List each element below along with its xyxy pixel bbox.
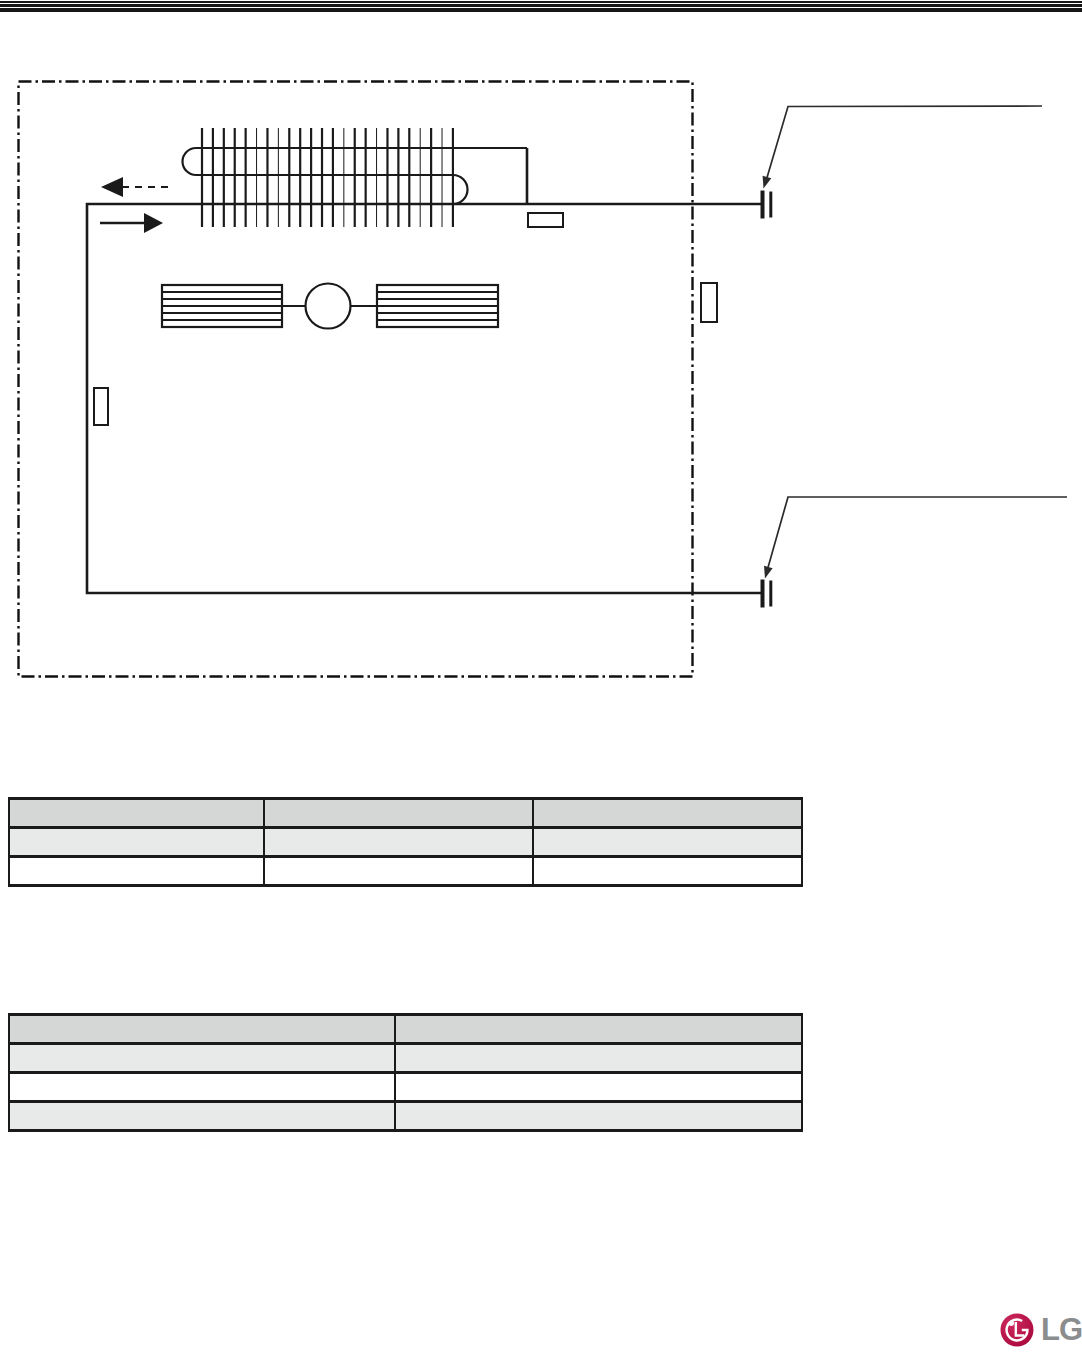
airflow-out-arrow [101,177,168,197]
spec-table-1 [8,797,803,887]
table-cell [395,1073,802,1102]
spec-table-2-grid [8,1013,803,1132]
table-cell [9,1015,395,1044]
table-row [9,828,802,857]
table-row [9,799,802,828]
table-row [9,1044,802,1073]
table-cell [9,828,264,857]
table-cell [533,857,802,886]
airflow-in-arrow [100,213,163,233]
table-cell [9,799,264,828]
gas-pipe-callout-leader [763,106,1042,189]
liquid-callout-line [767,497,1067,571]
table-cell [9,857,264,886]
table-cell [264,857,533,886]
table-row [9,1073,802,1102]
spec-table-2 [8,1013,803,1132]
airflow-out-arrowhead-icon [101,177,123,197]
lg-symbol-icon [1000,1313,1034,1347]
pipe-sensor [528,213,563,227]
liquid-pipe-flare-connection [763,580,771,608]
gas-callout-line [766,106,1042,181]
table-row [9,1102,802,1131]
liquid-callout-arrowhead-icon [764,566,773,579]
table-cell [533,799,802,828]
table-cell [9,1044,395,1073]
fan-motor-icon [306,284,351,329]
refrigerant-pipes [87,148,761,593]
lg-logo-text: LG [1041,1313,1082,1347]
airflow-in-arrowhead-icon [144,213,163,233]
spec-table-1-grid [8,797,803,887]
table-cell [395,1102,802,1131]
table-cell [264,828,533,857]
table-cell [9,1102,395,1131]
liquid-pipe-callout-leader [764,497,1067,579]
manual-page: LG [0,0,1082,1354]
lg-logo: LG [1000,1313,1082,1347]
heat-exchanger-fins [202,128,453,227]
table-cell [395,1044,802,1073]
refrigerant-cycle-diagram [0,0,1082,700]
table-cell [264,799,533,828]
liquid-line-sensor [94,388,108,425]
fan-assembly [162,284,498,329]
gas-pipe-flare-connection [763,191,771,219]
table-row [9,1015,802,1044]
table-row [9,857,802,886]
table-cell [533,828,802,857]
table-cell [9,1073,395,1102]
boundary-sensor [701,283,717,322]
gas-callout-arrowhead-icon [763,176,772,189]
table-cell [395,1015,802,1044]
